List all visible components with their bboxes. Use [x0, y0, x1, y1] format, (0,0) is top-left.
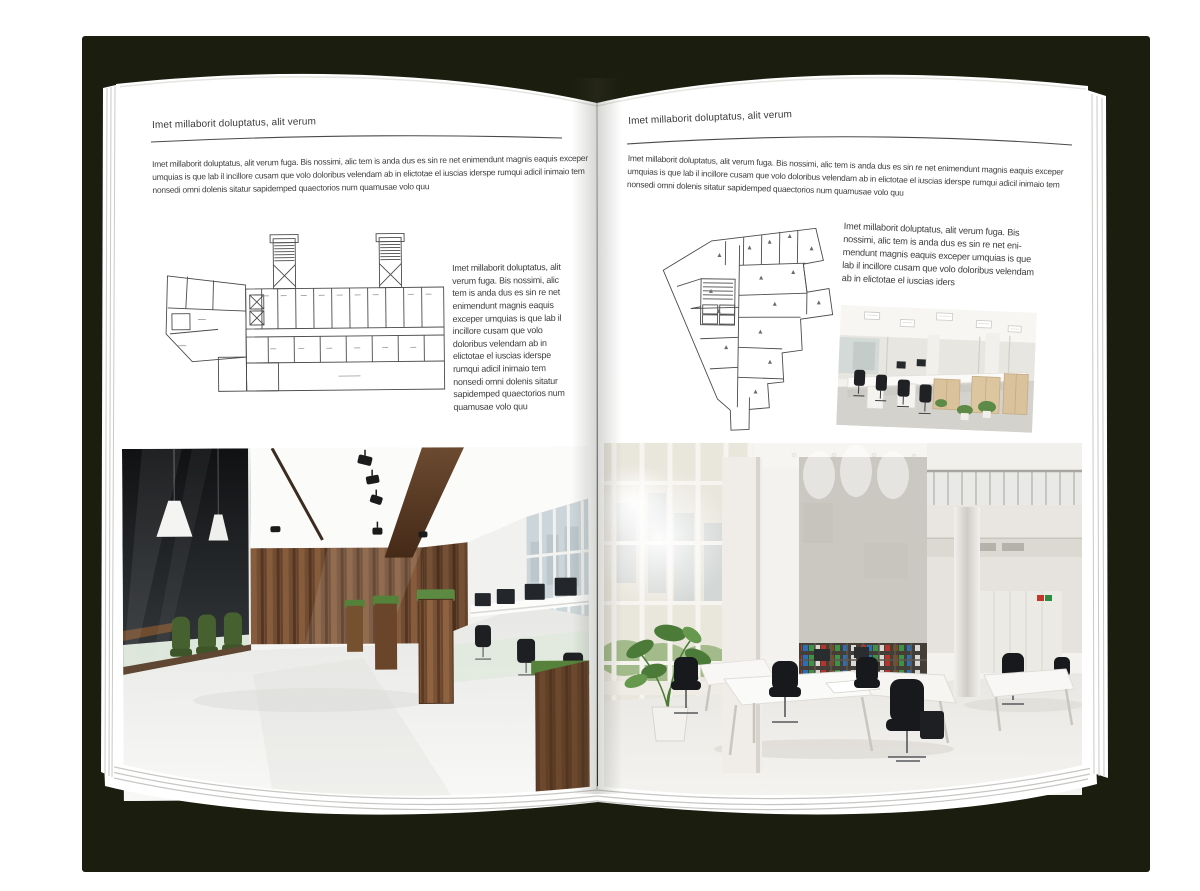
concrete-wall — [799, 445, 927, 643]
mezzanine-balcony — [927, 443, 1082, 557]
brochure-mockup: Imet millaborit doluptatus, alit verum I… — [0, 0, 1200, 891]
left-page-title: Imet millaborit doluptatus, alit verum — [152, 116, 316, 131]
right-large-photo-figure — [604, 443, 1082, 795]
left-page-stack — [101, 84, 120, 778]
right-page-title: Imet millaborit doluptatus, alit verum — [628, 109, 792, 127]
left-intro-paragraph: Imet millaborit doluptatus, alit verum f… — [152, 152, 595, 197]
right-header-rule — [626, 128, 1074, 148]
right-intro-paragraph: Imet millaborit doluptatus, alit verum f… — [627, 152, 1070, 205]
right-page-stack — [1087, 90, 1108, 778]
left-header-rule — [150, 131, 564, 145]
left-photo-figure — [122, 447, 590, 801]
right-small-photo-figure — [836, 305, 1037, 433]
right-floor-plan-figure — [645, 216, 840, 433]
round-column — [954, 507, 980, 697]
left-caption-column: Imet millaborit doluptatus, alit verum f… — [452, 261, 568, 414]
right-caption-column: Imet millaborit doluptatus, alit verum f… — [842, 220, 1046, 292]
left-floor-plan-figure — [157, 227, 451, 416]
